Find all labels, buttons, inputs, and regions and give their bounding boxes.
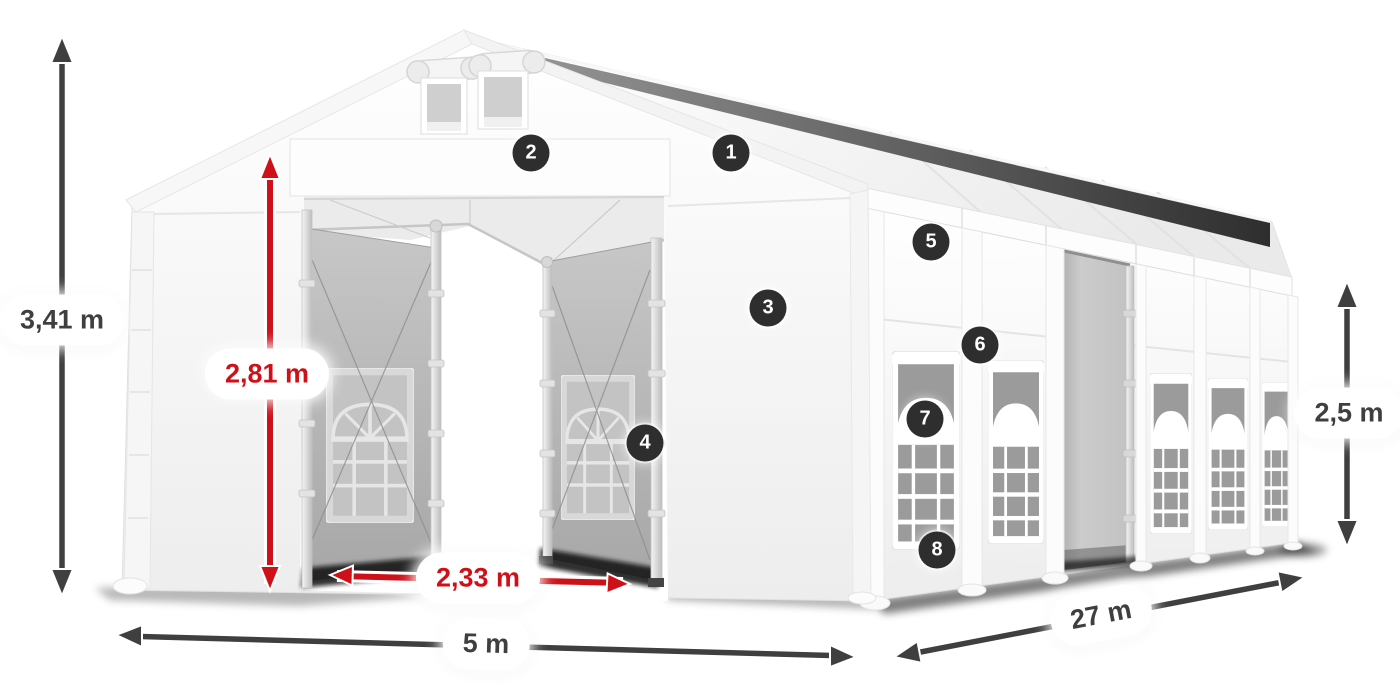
dimension-label-entrance-height: 2,81 m bbox=[210, 353, 324, 394]
door-panel-window-print bbox=[326, 368, 414, 523]
feature-marker-7: 7 bbox=[907, 401, 944, 438]
door-panel-left bbox=[303, 228, 436, 581]
side-window bbox=[1150, 373, 1192, 534]
gable-header-beam bbox=[290, 139, 670, 196]
feature-marker-8: 8 bbox=[919, 532, 956, 569]
dimension-label-total-height: 3,41 m bbox=[5, 299, 119, 340]
feature-marker-5: 5 bbox=[913, 224, 950, 261]
vent-window-right bbox=[478, 71, 528, 129]
front-opening bbox=[299, 196, 668, 601]
side-window bbox=[1262, 382, 1291, 527]
corner-post-right bbox=[850, 190, 871, 601]
corner-post-left bbox=[124, 212, 154, 590]
tent-illustration bbox=[0, 0, 1400, 700]
side-window bbox=[892, 351, 960, 550]
door-panel-right bbox=[543, 242, 656, 580]
feature-marker-1: 1 bbox=[713, 135, 750, 172]
product-dimension-diagram: 3,41 m 2,81 m 2,33 m 5 m 27 m 2,5 m 1 2 … bbox=[0, 0, 1400, 700]
dimension-label-entrance-width: 2,33 m bbox=[421, 557, 535, 598]
door-panel-window-print bbox=[561, 375, 635, 520]
feature-marker-3: 3 bbox=[750, 290, 787, 327]
side-window bbox=[1208, 378, 1248, 530]
feature-marker-2: 2 bbox=[513, 135, 550, 172]
feature-marker-6: 6 bbox=[962, 327, 999, 364]
vent-window-left bbox=[421, 78, 467, 134]
side-window bbox=[988, 360, 1044, 544]
dimension-label-side-height: 2,5 m bbox=[1299, 392, 1398, 433]
dimension-label-width: 5 m bbox=[447, 622, 525, 665]
side-door-opening bbox=[1058, 250, 1142, 572]
feature-marker-4: 4 bbox=[627, 425, 664, 462]
